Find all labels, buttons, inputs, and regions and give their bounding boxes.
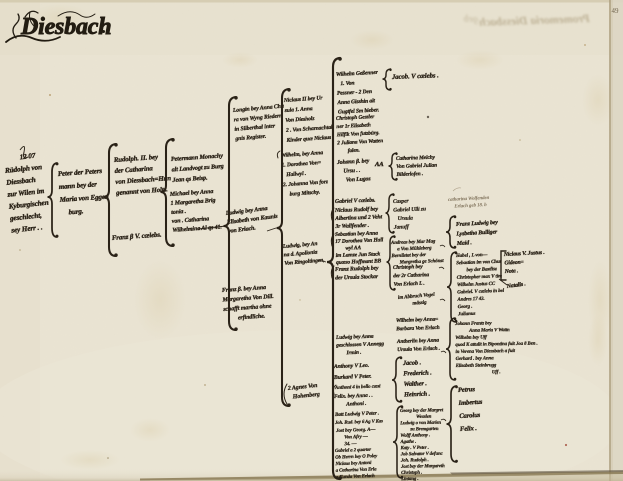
svg-text:Nota .: Nota . — [504, 268, 519, 275]
svg-text:1. Von: 1. Von — [340, 80, 354, 87]
svg-text:AA: AA — [374, 161, 384, 168]
svg-text:Elisabeth Steinbrugg: Elisabeth Steinbrugg — [455, 363, 497, 369]
svg-text:49: 49 — [612, 7, 620, 15]
svg-text:Georg .: Georg . — [458, 305, 473, 311]
svg-text:in Verena Von Diessbach a fuit: in Verena Von Diessbach a fuit — [455, 349, 515, 355]
svg-text:Januff: Januff — [393, 224, 410, 231]
svg-text:Ludwig o von Marien: Ludwig o von Marien — [399, 421, 441, 427]
svg-text:der 2r Catharina: der 2r Catharina — [393, 272, 429, 279]
svg-text:Walther .: Walther . — [404, 380, 428, 388]
svg-text:Irmin .: Irmin . — [345, 350, 361, 357]
svg-text:Anthony V Leo.: Anthony V Leo. — [333, 363, 369, 370]
svg-text:Wesslen: Wesslen — [416, 415, 432, 420]
svg-text:Joh. Rudolph .: Joh. Rudolph . — [400, 458, 429, 464]
svg-text:Gideon=: Gideon= — [504, 259, 524, 266]
svg-text:Uff .: Uff . — [492, 370, 501, 375]
svg-text:Job Salvator V defunc: Job Salvator V defunc — [400, 452, 444, 458]
svg-text:Frederich .: Frederich . — [403, 369, 432, 377]
svg-text:Casper: Casper — [393, 198, 410, 205]
svg-text:Jacob .: Jacob . — [402, 359, 422, 367]
svg-text:wyl AA: wyl AA — [345, 245, 361, 252]
svg-text:12 07: 12 07 — [19, 152, 36, 162]
svg-text:3r Wallfender .: 3r Wallfender . — [334, 223, 369, 230]
svg-text:Georg bey der Margret: Georg bey der Margret — [400, 408, 444, 414]
svg-text:Bilderlofen .: Bilderlofen . — [395, 171, 423, 178]
svg-text:mässig: mässig — [412, 299, 427, 306]
svg-text:Ursula: Ursula — [397, 216, 413, 223]
svg-text:Jost bey der Margareth: Jost bey der Margareth — [400, 464, 445, 470]
svg-text:Felix .: Felix . — [460, 425, 478, 433]
svg-text:zu Bremgarten: zu Bremgarten — [409, 427, 439, 433]
svg-text:bey der Bastlisz: bey der Bastlisz — [466, 267, 497, 273]
svg-text:Anna Maria V Wattn: Anna Maria V Wattn — [468, 328, 510, 334]
svg-text:Agathe .: Agathe . — [399, 440, 416, 445]
svg-text:geb: geb — [464, 14, 479, 25]
svg-text:Johann Frantz bey: Johann Frantz bey — [454, 321, 493, 327]
svg-text:Lintang .: Lintang . — [400, 477, 418, 481]
svg-text:Maid .: Maid . — [456, 240, 472, 247]
svg-text:Andres 17 43.: Andres 17 43. — [456, 297, 484, 303]
svg-text:Anthoni .: Anthoni . — [345, 401, 366, 408]
svg-text:Imbertus: Imbertus — [457, 399, 483, 407]
svg-text:Wilhelm bey Uff: Wilhelm bey Uff — [455, 335, 488, 341]
svg-text:Carolus: Carolus — [459, 412, 481, 420]
svg-text:Ursu . .: Ursu . . — [343, 168, 360, 175]
svg-text:Julianus: Julianus — [457, 312, 476, 318]
svg-text:burg.: burg. — [68, 207, 84, 216]
svg-text:Gerhard . bey Anna: Gerhard . bey Anna — [456, 356, 495, 362]
svg-text:Heinrich .: Heinrich . — [403, 391, 431, 399]
svg-text:Christoph bey: Christoph bey — [393, 264, 424, 271]
svg-text:Katy . V Peter .: Katy . V Peter . — [400, 446, 429, 452]
svg-text:Christoph .: Christoph . — [401, 471, 422, 476]
svg-text:Gabriel Ulli zu: Gabriel Ulli zu — [393, 206, 426, 213]
svg-text:34. —: 34. — — [343, 442, 356, 447]
svg-text:falen.: falen. — [347, 148, 359, 155]
svg-text:Petrus: Petrus — [458, 386, 476, 394]
svg-text:Von Afry —: Von Afry — — [344, 435, 368, 441]
svg-text:Von Erlach L .: Von Erlach L . — [393, 281, 424, 288]
svg-text:Diesbach: Diesbach — [20, 14, 111, 40]
svg-text:tonia .: tonia . — [171, 209, 187, 216]
svg-text:Wolff Anthony .: Wolff Anthony . — [400, 433, 430, 439]
